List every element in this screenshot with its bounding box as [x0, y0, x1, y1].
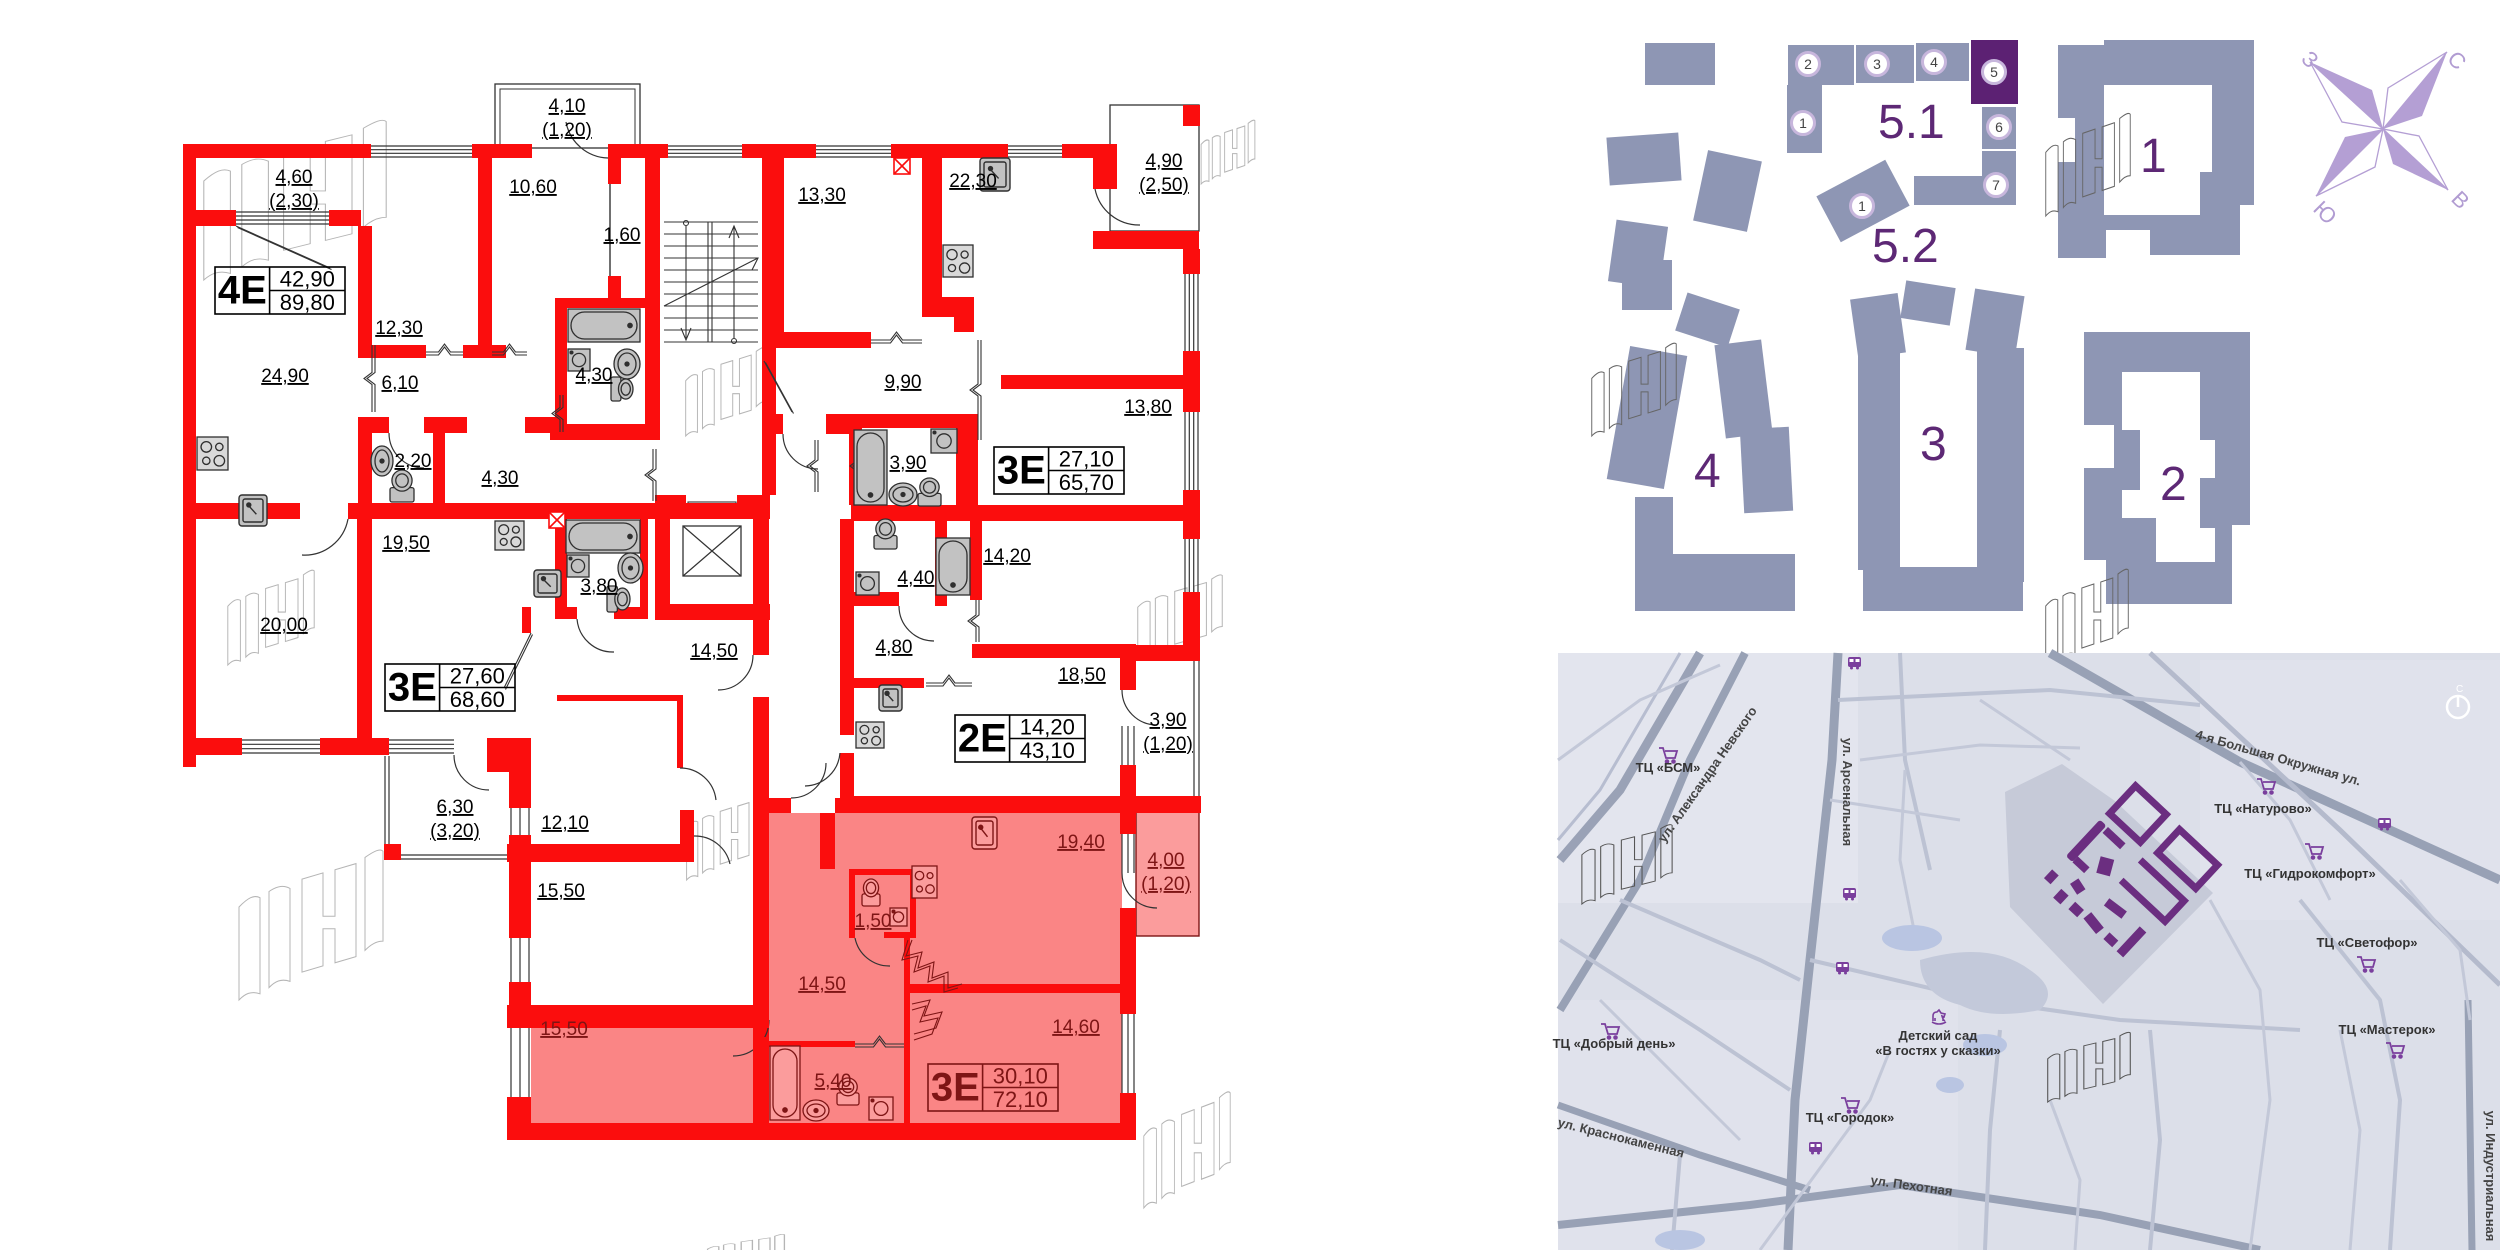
svg-text:4,40: 4,40	[898, 568, 935, 589]
svg-text:19,40: 19,40	[1057, 832, 1105, 853]
svg-text:ТЦ «БСМ»: ТЦ «БСМ»	[1636, 760, 1701, 775]
svg-text:ТЦ «Городок»: ТЦ «Городок»	[1806, 1110, 1895, 1125]
svg-text:27,60: 27,60	[450, 664, 505, 689]
svg-text:18,50: 18,50	[1058, 665, 1106, 686]
svg-text:1: 1	[1858, 198, 1866, 214]
svg-text:(1,20): (1,20)	[1141, 874, 1191, 895]
svg-text:24,90: 24,90	[261, 366, 309, 387]
svg-text:3Е: 3Е	[997, 449, 1046, 493]
svg-text:72,10: 72,10	[993, 1087, 1048, 1112]
svg-text:(1,20): (1,20)	[542, 120, 592, 141]
svg-text:9,90: 9,90	[885, 372, 922, 393]
svg-text:12,10: 12,10	[541, 813, 589, 834]
svg-text:14,50: 14,50	[690, 641, 738, 662]
svg-text:ТЦ «Мастерок»: ТЦ «Мастерок»	[2339, 1022, 2436, 1037]
svg-text:2: 2	[2160, 458, 2187, 511]
svg-text:ул. Арсенальная: ул. Арсенальная	[1840, 738, 1855, 846]
svg-text:22,30: 22,30	[949, 171, 997, 192]
svg-text:5,40: 5,40	[815, 1071, 852, 1092]
svg-text:20,00: 20,00	[260, 615, 308, 636]
svg-text:ТЦ «Натурово»: ТЦ «Натурово»	[2214, 801, 2312, 816]
svg-text:4,90: 4,90	[1146, 151, 1183, 172]
svg-text:68,60: 68,60	[450, 687, 505, 712]
svg-text:ТЦ «Добрый день»: ТЦ «Добрый день»	[1553, 1036, 1676, 1051]
svg-text:(1,20): (1,20)	[1143, 734, 1193, 755]
svg-text:43,10: 43,10	[1020, 738, 1075, 763]
svg-text:27,10: 27,10	[1059, 447, 1114, 472]
svg-text:1,60: 1,60	[604, 225, 641, 246]
svg-text:2: 2	[1804, 56, 1812, 72]
svg-text:С: С	[2456, 684, 2463, 695]
svg-text:3,90: 3,90	[890, 453, 927, 474]
svg-text:2Е: 2Е	[958, 717, 1007, 761]
svg-text:13,30: 13,30	[798, 185, 846, 206]
svg-text:6: 6	[1995, 119, 2003, 135]
svg-text:6,10: 6,10	[382, 373, 419, 394]
svg-text:3Е: 3Е	[388, 666, 437, 710]
svg-text:13,80: 13,80	[1124, 397, 1172, 418]
svg-text:ТЦ «Гидрокомфорт»: ТЦ «Гидрокомфорт»	[2244, 866, 2376, 881]
svg-text:(2,30): (2,30)	[269, 191, 319, 212]
svg-text:42,90: 42,90	[280, 267, 335, 292]
svg-text:4,30: 4,30	[482, 468, 519, 489]
svg-text:19,50: 19,50	[382, 533, 430, 554]
svg-text:4,00: 4,00	[1148, 850, 1185, 871]
svg-text:С: С	[2442, 46, 2471, 75]
svg-text:5.2: 5.2	[1872, 220, 1939, 273]
svg-text:ул. Индустриальная: ул. Индустриальная	[2483, 1111, 2498, 1242]
svg-text:3,80: 3,80	[581, 576, 618, 597]
svg-text:«В гостях у сказки»: «В гостях у сказки»	[1875, 1043, 2000, 1058]
svg-text:(2,50): (2,50)	[1139, 175, 1189, 196]
svg-text:12,30: 12,30	[375, 318, 423, 339]
svg-text:4,80: 4,80	[876, 637, 913, 658]
svg-text:14,20: 14,20	[1020, 715, 1075, 740]
svg-text:15,50: 15,50	[537, 881, 585, 902]
svg-text:14,50: 14,50	[798, 974, 846, 995]
svg-text:ТЦ «Светофор»: ТЦ «Светофор»	[2317, 935, 2418, 950]
svg-text:4: 4	[1694, 445, 1721, 498]
svg-text:4,30: 4,30	[576, 365, 613, 386]
svg-text:7: 7	[1992, 177, 2000, 193]
svg-text:4Е: 4Е	[218, 269, 267, 313]
svg-text:(3,20): (3,20)	[430, 821, 480, 842]
svg-text:4,10: 4,10	[549, 96, 586, 117]
svg-text:3Е: 3Е	[931, 1066, 980, 1110]
svg-text:5.1: 5.1	[1878, 96, 1945, 149]
svg-text:2,20: 2,20	[395, 451, 432, 472]
svg-text:14,60: 14,60	[1052, 1017, 1100, 1038]
svg-text:1: 1	[1799, 115, 1807, 131]
svg-text:1: 1	[2140, 130, 2167, 183]
svg-text:15,50: 15,50	[540, 1019, 588, 1040]
svg-text:4,60: 4,60	[276, 167, 313, 188]
svg-text:1,50: 1,50	[855, 911, 892, 932]
svg-text:10,60: 10,60	[509, 177, 557, 198]
svg-text:В: В	[2446, 186, 2474, 214]
svg-text:Ю: Ю	[2308, 196, 2341, 229]
svg-text:Детский сад: Детский сад	[1899, 1028, 1979, 1043]
svg-text:4: 4	[1930, 54, 1938, 70]
svg-text:3,90: 3,90	[1150, 710, 1187, 731]
svg-text:3: 3	[1920, 418, 1947, 471]
svg-text:65,70: 65,70	[1059, 470, 1114, 495]
svg-text:14,20: 14,20	[983, 546, 1031, 567]
svg-text:89,80: 89,80	[280, 290, 335, 315]
svg-text:30,10: 30,10	[993, 1064, 1048, 1089]
svg-text:6,30: 6,30	[437, 797, 474, 818]
svg-text:5: 5	[1990, 64, 1998, 80]
svg-text:3: 3	[1873, 56, 1881, 72]
